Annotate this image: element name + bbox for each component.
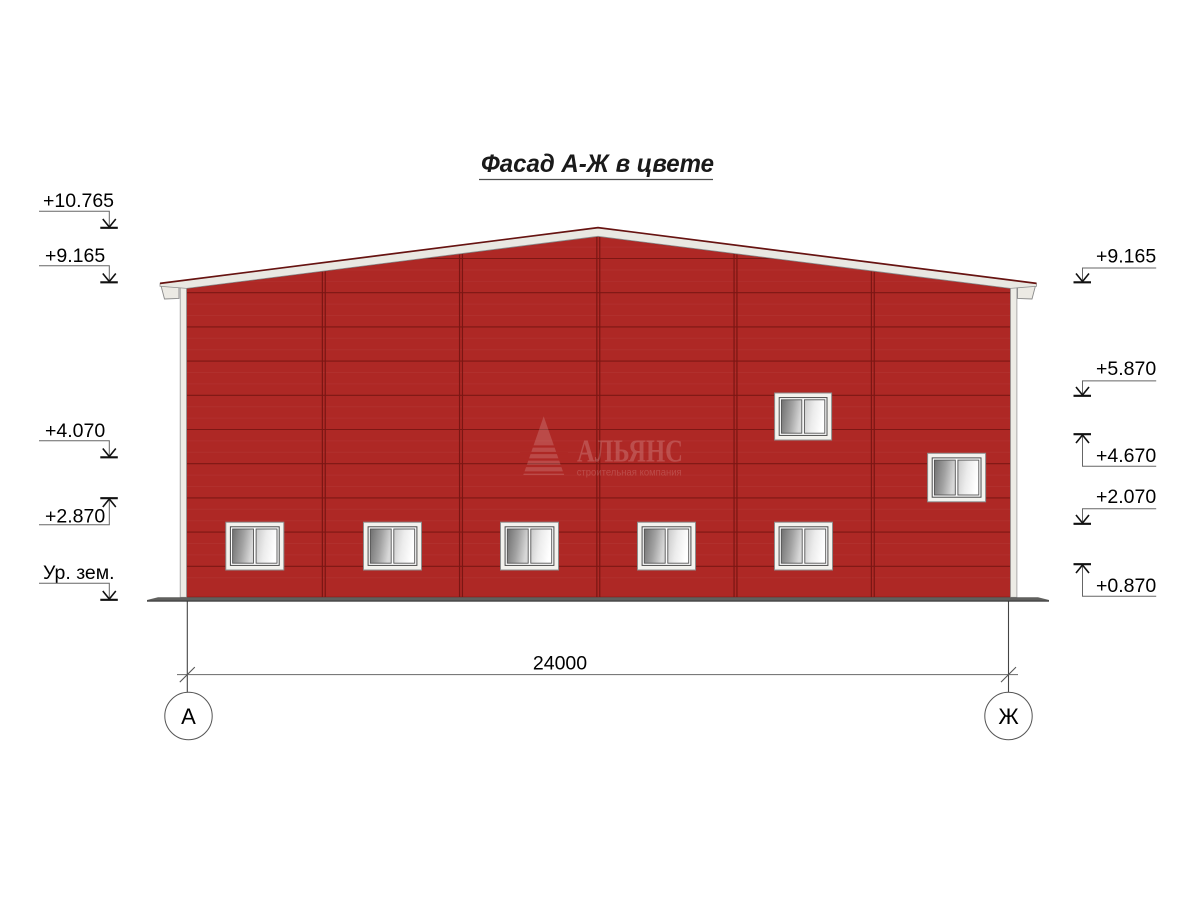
svg-text:Ур. зем.: Ур. зем. <box>43 562 115 584</box>
svg-text:+0.870: +0.870 <box>1096 575 1156 597</box>
svg-text:Фасад А-Ж в цвете: Фасад А-Ж в цвете <box>481 150 714 178</box>
svg-text:+10.765: +10.765 <box>43 190 114 212</box>
svg-text:+9.165: +9.165 <box>45 245 105 267</box>
svg-text:+4.070: +4.070 <box>45 420 105 442</box>
svg-text:24000: 24000 <box>533 653 587 675</box>
svg-text:+4.670: +4.670 <box>1096 445 1156 467</box>
svg-text:Ж: Ж <box>998 704 1019 729</box>
svg-text:+2.070: +2.070 <box>1096 486 1156 508</box>
svg-text:+5.870: +5.870 <box>1096 358 1156 380</box>
svg-text:АЛЬЯНС: АЛЬЯНС <box>577 433 683 469</box>
svg-text:+9.165: +9.165 <box>1096 246 1156 268</box>
svg-text:строительная компания: строительная компания <box>577 468 682 479</box>
svg-text:А: А <box>181 704 196 729</box>
